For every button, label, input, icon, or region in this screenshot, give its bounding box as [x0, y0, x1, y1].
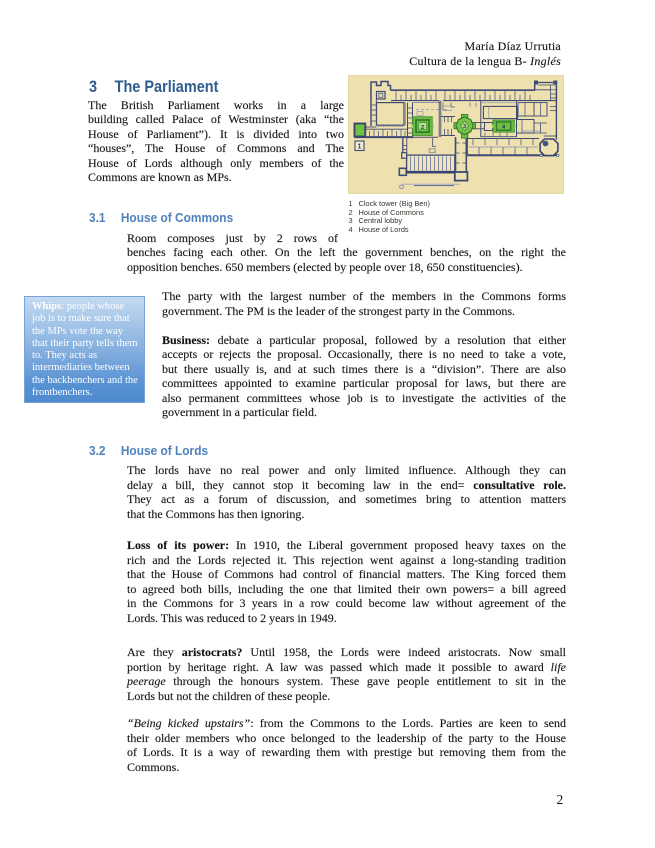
svg-text:3: 3 [463, 124, 466, 130]
svg-text:1: 1 [358, 143, 362, 150]
svg-text:2: 2 [421, 125, 424, 131]
